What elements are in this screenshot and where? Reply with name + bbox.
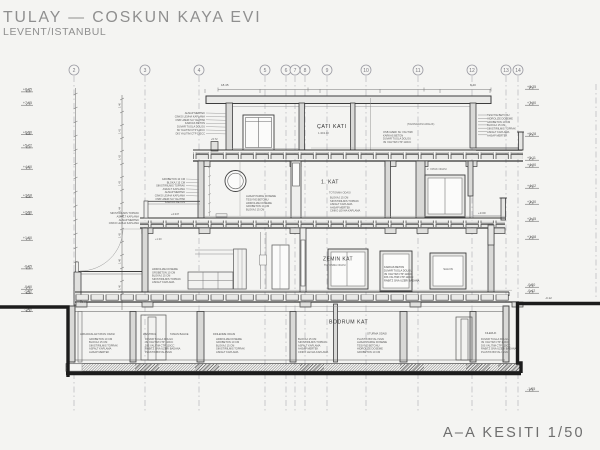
- svg-text:DIS YALITIM CTP 110CC: DIS YALITIM CTP 110CC: [384, 275, 413, 279]
- svg-text:12: 12: [469, 68, 475, 74]
- svg-text:7: 7: [294, 68, 297, 74]
- svg-text:4: 4: [198, 68, 201, 74]
- svg-text:TAMAN BAHCE: TAMAN BAHCE: [170, 332, 189, 336]
- svg-text:AHSAP MERTEK: AHSAP MERTEK: [89, 350, 109, 354]
- svg-text:SALON: SALON: [443, 267, 452, 271]
- svg-text:14: 14: [515, 68, 521, 74]
- svg-text:+1.30: +1.30: [155, 237, 162, 241]
- svg-text:CINKO LEVHA KAPLAMA: CINKO LEVHA KAPLAMA: [330, 209, 361, 213]
- svg-text:BODRUM KAT: BODRUM KAT: [329, 320, 369, 326]
- svg-text:HIDROLIZE DOSEME: HIDROLIZE DOSEME: [487, 116, 513, 120]
- svg-text:1.40: 1.40: [118, 102, 122, 108]
- svg-text:5: 5: [264, 68, 267, 74]
- svg-text:CINKO LEVHA KAPLAMA: CINKO LEVHA KAPLAMA: [298, 350, 329, 354]
- svg-text:-0.30: -0.30: [527, 283, 535, 287]
- svg-text:AHSAP MERTEK: AHSAP MERTEK: [119, 218, 139, 222]
- svg-text:DINLENME ODASI: DINLENME ODASI: [213, 332, 235, 336]
- svg-text:8.40: 8.40: [470, 83, 476, 87]
- svg-text:GROBETON 10 CM: GROBETON 10 CM: [357, 350, 380, 354]
- svg-text:-0.12: -0.12: [545, 296, 552, 300]
- svg-text:AHSAP PARKE DOSEME: AHSAP PARKE DOSEME: [246, 194, 276, 198]
- svg-text:GROBETON 10 CM: GROBETON 10 CM: [246, 204, 269, 208]
- svg-text:KARKAS BETON: KARKAS BETON: [185, 121, 205, 125]
- svg-text:PLASTIK BOYALI SIVA: PLASTIK BOYALI SIVA: [481, 350, 508, 354]
- svg-text:1.45: 1.45: [118, 232, 122, 238]
- svg-text:+5.11: +5.11: [527, 156, 536, 160]
- svg-text:-1.55: -1.55: [527, 387, 535, 391]
- svg-text:±0.00: ±0.00: [80, 300, 88, 304]
- svg-text:10: 10: [363, 68, 369, 74]
- svg-text:-0.42: -0.42: [527, 289, 535, 293]
- svg-text:ASFALT KAPLAMA: ASFALT KAPLAMA: [216, 350, 239, 354]
- svg-text:ASFALT KAPLAMA: ASFALT KAPLAMA: [152, 280, 175, 284]
- svg-text:DIS YALITIM CTP 110CC: DIS YALITIM CTP 110CC: [176, 131, 205, 135]
- svg-text:2: 2: [73, 68, 76, 74]
- svg-text:ÇATI KATI: ÇATI KATI: [317, 124, 346, 130]
- svg-text:+5.72: +5.72: [211, 137, 218, 141]
- svg-text:ASFALT KAPLAMA: ASFALT KAPLAMA: [487, 130, 510, 134]
- svg-text:HIDROLIZE DOSEME: HIDROLIZE DOSEME: [246, 201, 272, 205]
- svg-text:ISI YALITIM CTP 110CC: ISI YALITIM CTP 110CC: [384, 272, 412, 276]
- svg-text:1. KAT: 1. KAT: [321, 180, 339, 186]
- svg-text:A–A KESITI 1/50: A–A KESITI 1/50: [443, 425, 585, 441]
- svg-text:3: 3: [144, 68, 147, 74]
- svg-text:DUVAR TUGLA DOLGU: DUVAR TUGLA DOLGU: [384, 268, 412, 272]
- svg-text:PLASTIK BOYALI SIVA: PLASTIK BOYALI SIVA: [145, 350, 172, 354]
- svg-text:13: 13: [503, 68, 509, 74]
- svg-text:ISI YALITIM CTP 110CC: ISI YALITIM CTP 110CC: [177, 128, 205, 132]
- svg-text:6: 6: [285, 68, 288, 74]
- svg-text:BLOKAJ 15 CM: BLOKAJ 15 CM: [246, 208, 264, 212]
- svg-text:CINKO LEVHA KAPLAMA: CINKO LEVHA KAPLAMA: [109, 221, 140, 225]
- svg-text:1.41: 1.41: [118, 128, 122, 134]
- svg-text:OTURMA ODASI: OTURMA ODASI: [367, 332, 387, 336]
- svg-text:DUVAR TUGLA DOLGU: DUVAR TUGLA DOLGU: [177, 125, 205, 129]
- svg-text:1.40: 1.40: [118, 284, 122, 290]
- svg-text:+4.347: +4.347: [171, 212, 180, 216]
- svg-text:AHSAP MERTEK: AHSAP MERTEK: [185, 111, 205, 115]
- svg-text:OSB UZERI SU YALITIMI: OSB UZERI SU YALITIMI: [175, 118, 205, 122]
- svg-text:WESTIBUL: WESTIBUL: [143, 332, 157, 336]
- svg-text:AHSAP MERTEK: AHSAP MERTEK: [487, 133, 507, 137]
- svg-text:ISI YALITIM CTP 110CC: ISI YALITIM CTP 110CC: [383, 140, 411, 144]
- svg-text:SIKISTIRILMIS TOPRAK: SIKISTIRILMIS TOPRAK: [487, 127, 516, 131]
- svg-text:1.40/2.40: 1.40/2.40: [318, 131, 329, 135]
- svg-text:KILERLIK: KILERLIK: [485, 331, 497, 335]
- svg-text:KARKAS BETON: KARKAS BETON: [384, 265, 404, 269]
- svg-text:TOTONMA ODASI: TOTONMA ODASI: [324, 263, 346, 267]
- svg-text:9: 9: [326, 68, 329, 74]
- svg-text:ZEMIN KAT: ZEMIN KAT: [323, 257, 353, 263]
- svg-text:KARKAS BETON: KARKAS BETON: [165, 200, 185, 204]
- svg-text:ARKADASLAR TATAN ODASI: ARKADASLAR TATAN ODASI: [80, 332, 115, 336]
- svg-text:CINKO LEVHA KAPLAMA: CINKO LEVHA KAPLAMA: [175, 114, 206, 118]
- svg-text:(TAVANARASI ARALIK): (TAVANARASI ARALIK): [407, 122, 435, 126]
- svg-text:1.46: 1.46: [118, 258, 122, 264]
- svg-text:2. YATAK ODASI: 2. YATAK ODASI: [427, 167, 447, 171]
- svg-text:TESVIYE BETONU: TESVIYE BETONU: [487, 113, 510, 117]
- svg-text:TOTONMA ODASI: TOTONMA ODASI: [329, 191, 351, 195]
- svg-text:RABITZ SIVA UZERI BADANA: RABITZ SIVA UZERI BADANA: [384, 279, 420, 283]
- svg-text:ASFALT KAPLAMA: ASFALT KAPLAMA: [117, 214, 140, 218]
- svg-text:LEVENT/ISTANBUL: LEVENT/ISTANBUL: [3, 26, 106, 38]
- svg-text:SIKISTIRILMIS TOPRAK: SIKISTIRILMIS TOPRAK: [110, 211, 139, 215]
- svg-text:11: 11: [415, 68, 420, 74]
- svg-text:1.43: 1.43: [118, 180, 122, 186]
- svg-text:8: 8: [304, 68, 307, 74]
- svg-text:BLOKAJ 15 CM: BLOKAJ 15 CM: [487, 123, 505, 127]
- svg-text:+3.00: +3.00: [478, 211, 486, 215]
- svg-text:1.42: 1.42: [118, 154, 122, 160]
- svg-text:GROBETON 10 CM: GROBETON 10 CM: [487, 120, 510, 124]
- svg-text:TULAY — COSKUN KAYA EVI: TULAY — COSKUN KAYA EVI: [3, 9, 261, 26]
- svg-text:18.45: 18.45: [221, 83, 229, 87]
- svg-text:TESVIYE BETONU: TESVIYE BETONU: [246, 197, 269, 201]
